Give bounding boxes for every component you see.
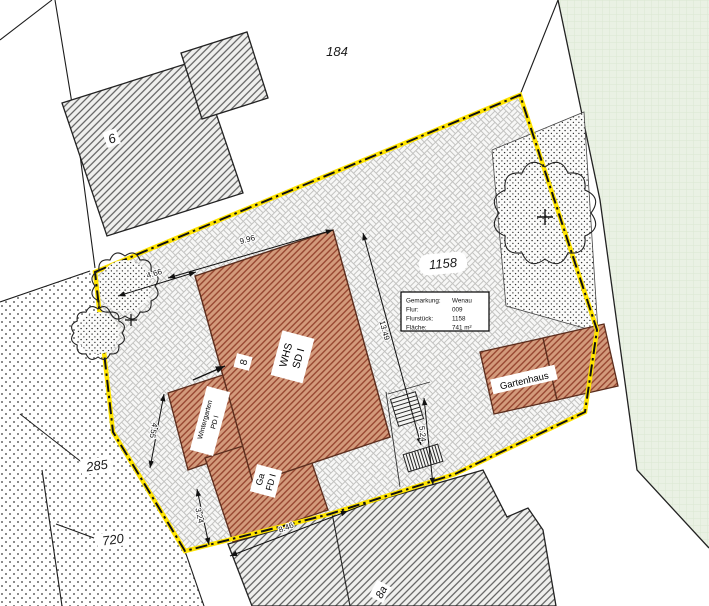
svg-text:720: 720 xyxy=(101,530,125,548)
site-plan-canvas: 6 8a WHS SD I Wintergarten PD I Ga FD I xyxy=(0,0,709,606)
info-row-label: Flur: xyxy=(406,307,419,314)
info-row-value: Wenau xyxy=(452,298,472,305)
info-row-label: Flurstück: xyxy=(406,316,434,323)
info-row-label: Fläche: xyxy=(406,325,427,332)
dimension-path: 5.24 xyxy=(417,426,428,443)
info-row-value: 741 m² xyxy=(452,325,472,332)
info-row-label: Gemarkung: xyxy=(406,298,441,305)
info-row-value: 009 xyxy=(452,307,463,314)
info-box: Gemarkung: Wenau Flur: 009 Flurstück: 11… xyxy=(401,292,489,332)
parcel-label-1158: 1158 xyxy=(418,251,468,276)
site-plan-map: 6 8a WHS SD I Wintergarten PD I Ga FD I xyxy=(0,0,709,606)
svg-text:1158: 1158 xyxy=(428,255,458,272)
parcel-label-184: 184 xyxy=(326,44,348,59)
info-row-value: 1158 xyxy=(452,316,466,323)
